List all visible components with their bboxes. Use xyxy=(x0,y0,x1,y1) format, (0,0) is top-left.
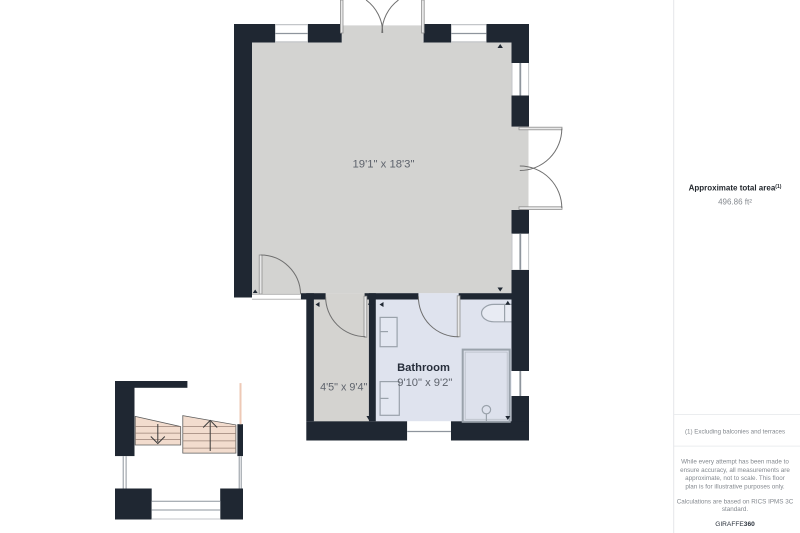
svg-text:9'10" x 9'2": 9'10" x 9'2" xyxy=(397,377,452,389)
svg-text:ensure accuracy, all measureme: ensure accuracy, all measurements are xyxy=(680,467,790,474)
svg-text:GIRAFFE360: GIRAFFE360 xyxy=(715,521,755,528)
svg-text:Approximate total area(1): Approximate total area(1) xyxy=(689,183,782,192)
svg-text:standard.: standard. xyxy=(722,506,749,513)
svg-text:approximate, not to scale. Thi: approximate, not to scale. This floor xyxy=(685,475,785,482)
svg-text:(1) Excluding balconies and te: (1) Excluding balconies and terraces xyxy=(685,428,785,435)
svg-text:496.86 ft²: 496.86 ft² xyxy=(718,197,752,206)
svg-text:plan is for illustrative purpo: plan is for illustrative purposes only. xyxy=(685,483,785,490)
svg-text:4'5" x 9'4": 4'5" x 9'4" xyxy=(320,382,367,394)
svg-text:While every attempt has been m: While every attempt has been made to xyxy=(681,459,789,466)
svg-text:Calculations are based on RICS: Calculations are based on RICS IPMS 3C xyxy=(677,499,794,506)
svg-text:19'1" x 18'3": 19'1" x 18'3" xyxy=(353,158,415,170)
svg-text:Bathroom: Bathroom xyxy=(397,362,450,374)
